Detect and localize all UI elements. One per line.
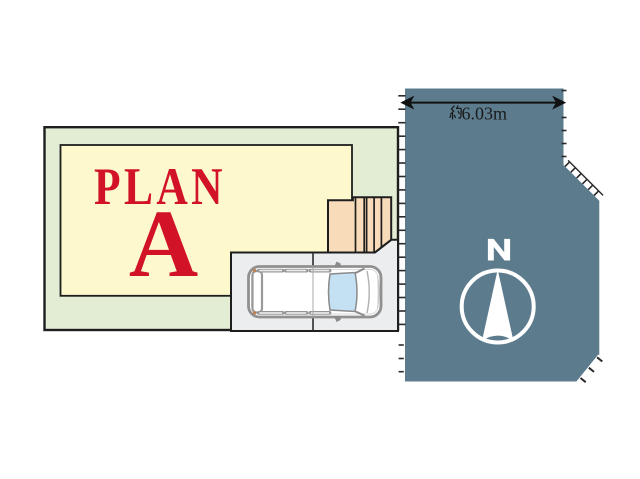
svg-text:6.03m: 6.03m	[462, 104, 508, 124]
svg-text:A: A	[129, 190, 198, 297]
